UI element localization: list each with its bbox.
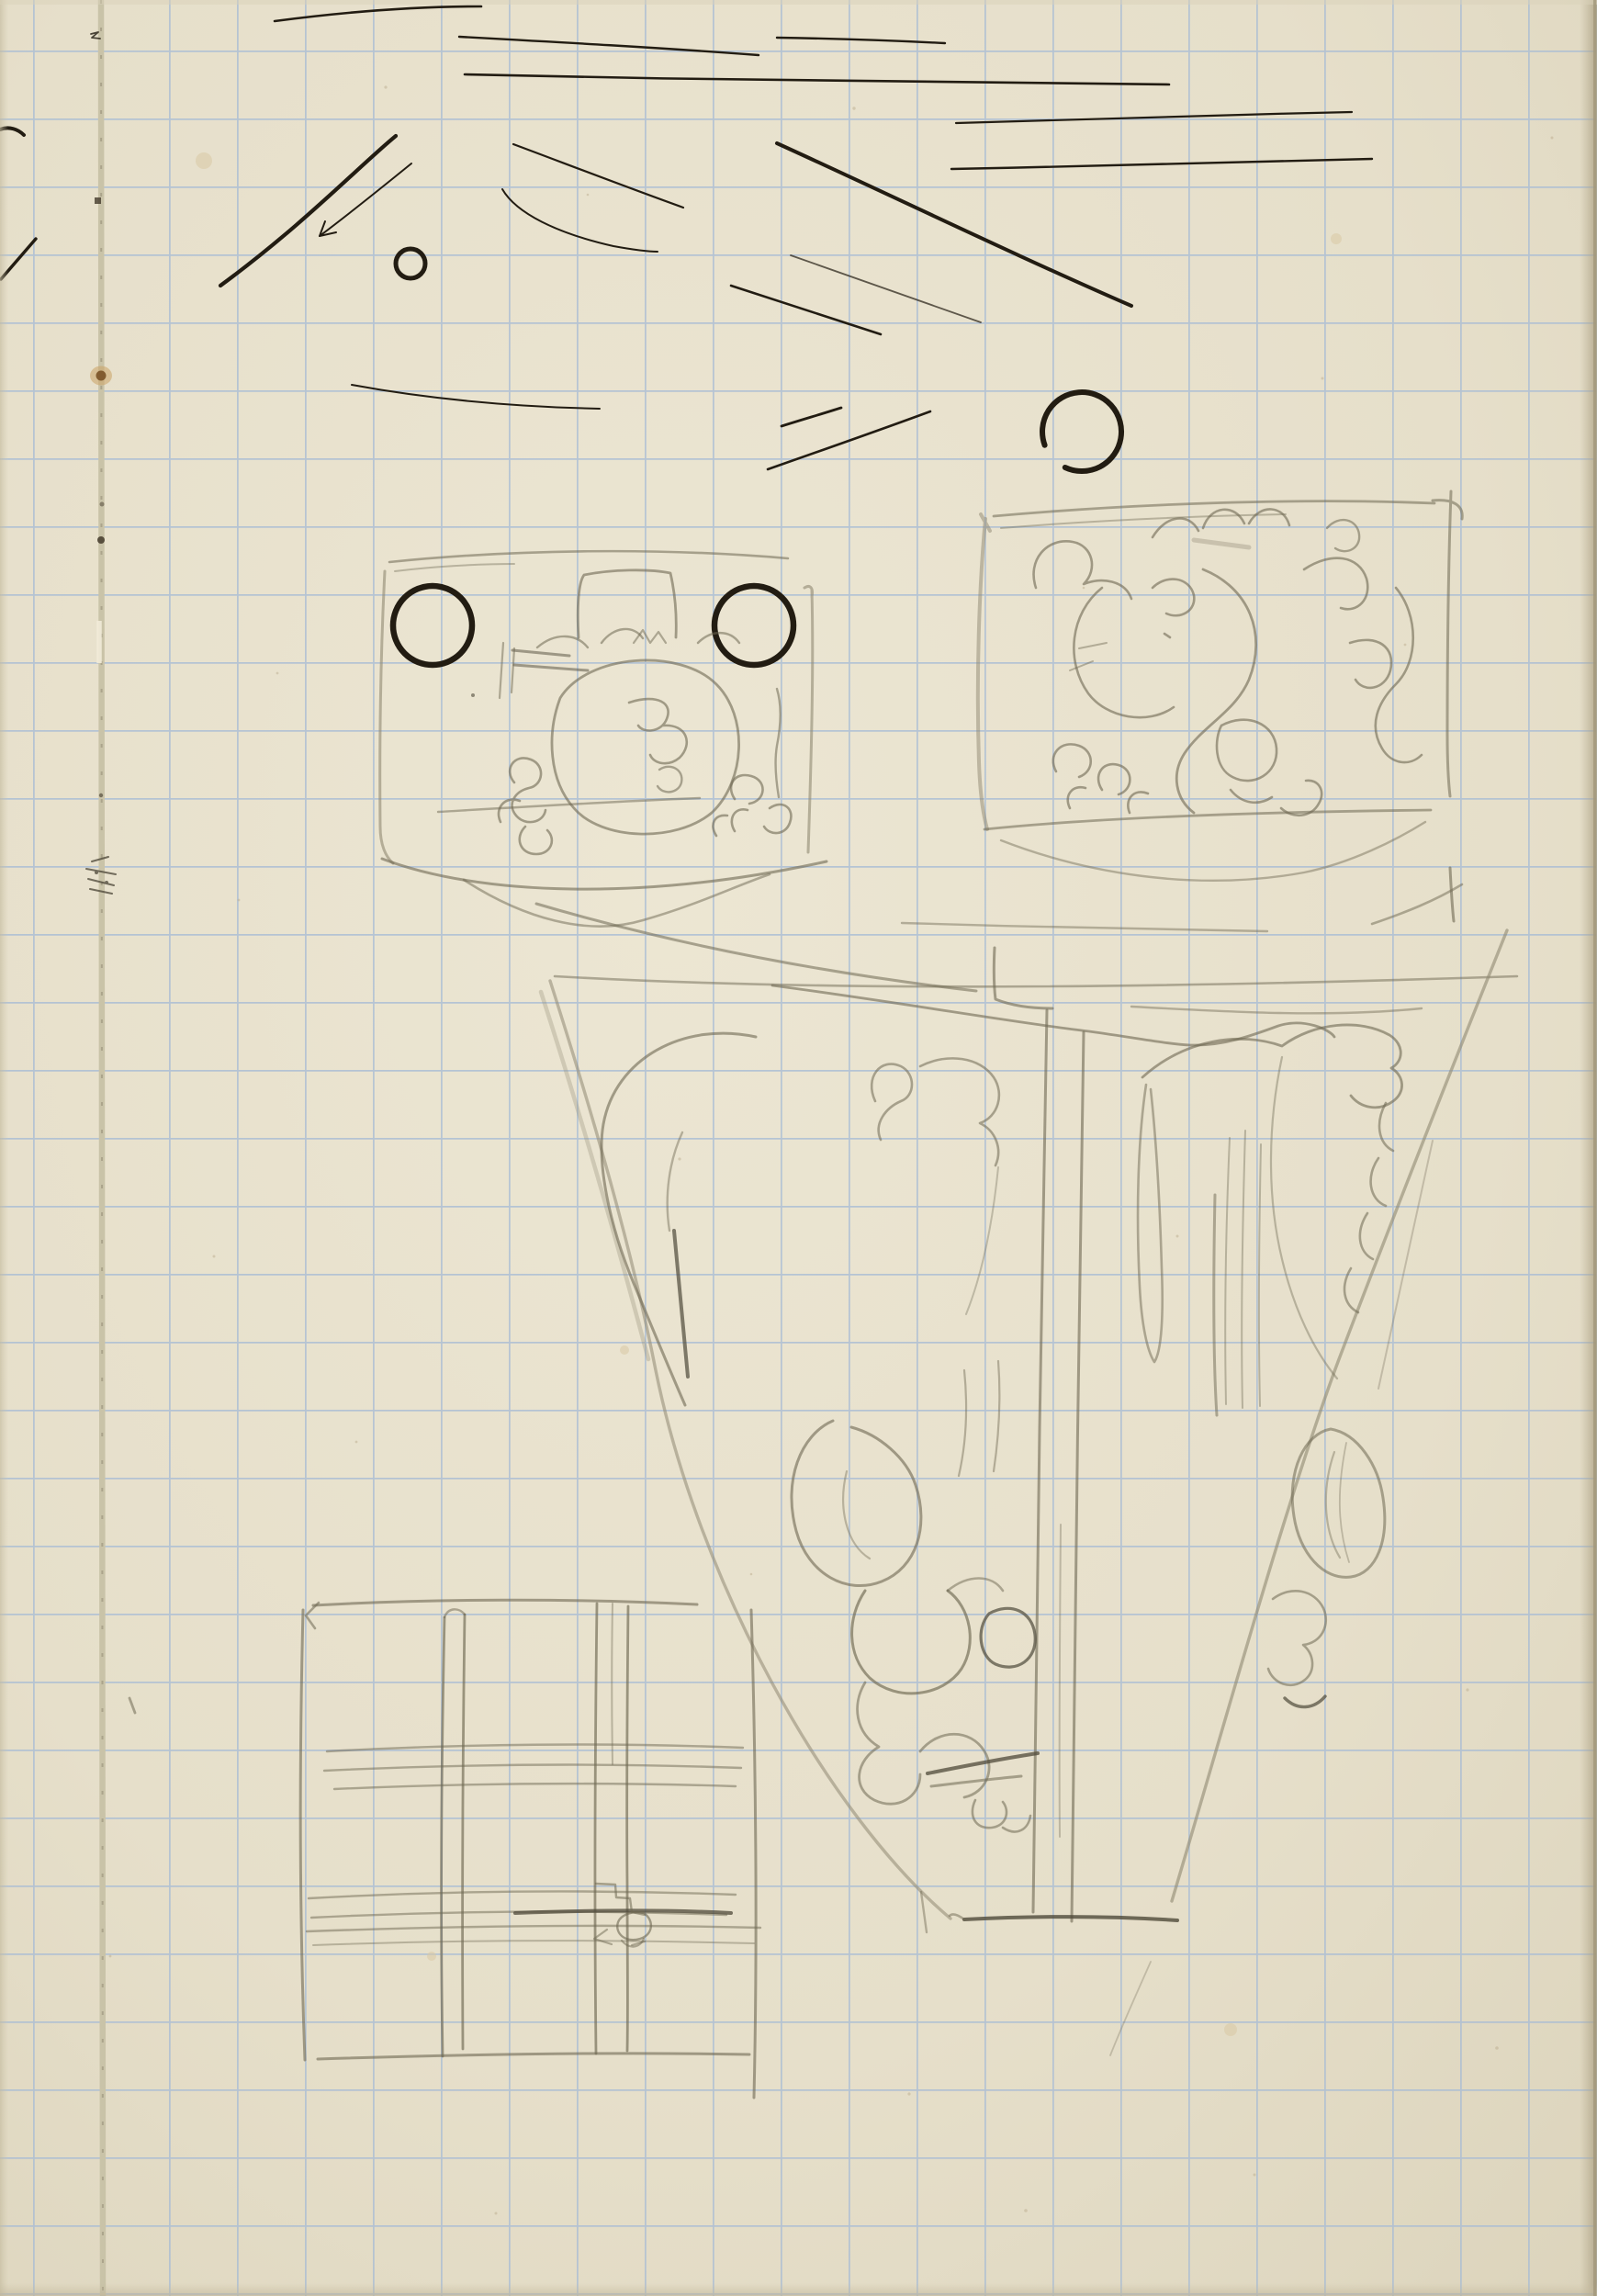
graph-grid [0, 0, 1597, 2296]
fold-fleck [99, 793, 103, 797]
sketch-canvas [0, 0, 1597, 2296]
paper-background [0, 0, 1597, 2296]
fold-fleck [100, 502, 105, 507]
fold-stain-blob [90, 366, 112, 386]
fold-fleck [95, 197, 101, 204]
fold-fleck [97, 536, 105, 544]
sketchbook-page [0, 0, 1597, 2296]
